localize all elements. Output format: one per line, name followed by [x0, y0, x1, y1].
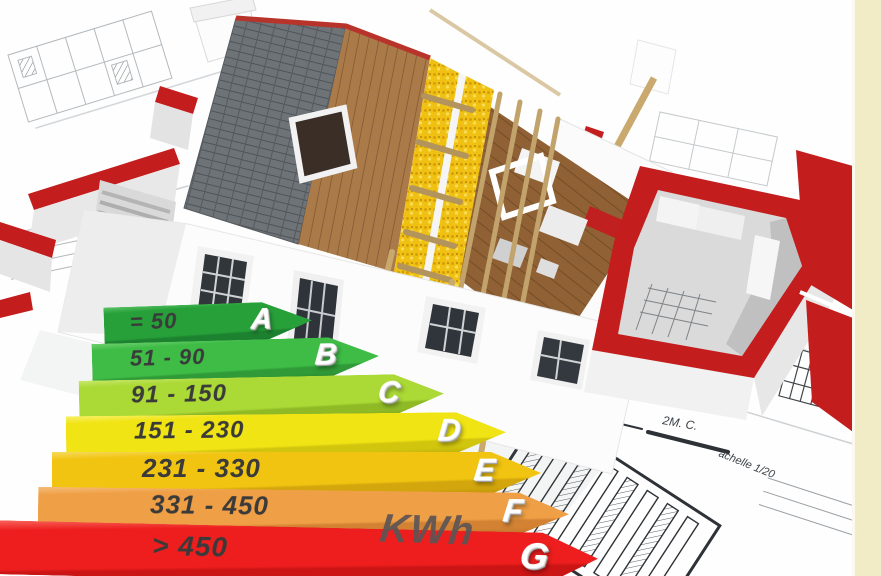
- blueprint-annotation-scale: achelle 1/20: [717, 448, 777, 482]
- window: [417, 296, 486, 364]
- window: [189, 246, 254, 324]
- illustration-canvas: 2M. C. achelle 1/20: [0, 0, 881, 576]
- blueprint-annotation-scale-note: 2M. C.: [660, 413, 698, 433]
- house-blueprint-illustration: 2M. C. achelle 1/20: [0, 0, 881, 576]
- page-edge-strip: [852, 0, 881, 576]
- skylight: [292, 108, 354, 180]
- window: [530, 330, 590, 390]
